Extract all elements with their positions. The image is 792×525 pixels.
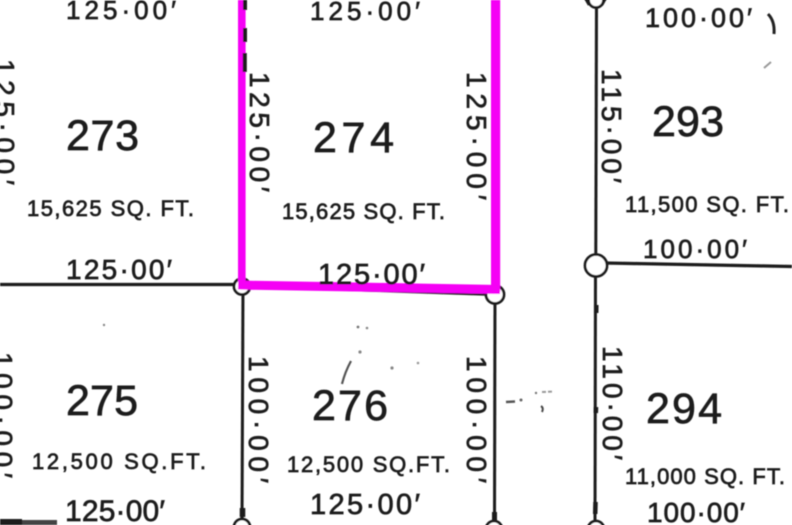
svg-text:275: 275 bbox=[66, 377, 138, 425]
svg-text:15,625 SQ. FT.: 15,625 SQ. FT. bbox=[27, 196, 194, 221]
svg-text:12,500 SQ.FT.: 12,500 SQ.FT. bbox=[287, 452, 450, 477]
svg-text:11,000 SQ. FT.: 11,000 SQ. FT. bbox=[625, 464, 785, 489]
svg-text:11,500 SQ. FT.: 11,500 SQ. FT. bbox=[625, 192, 789, 217]
svg-text:125·00′: 125·00′ bbox=[318, 259, 425, 291]
svg-text:125·00′: 125·00′ bbox=[65, 495, 165, 525]
svg-text:276: 276 bbox=[312, 382, 388, 430]
svg-text:293: 293 bbox=[652, 98, 724, 146]
svg-text:294: 294 bbox=[646, 385, 722, 433]
svg-text:273: 273 bbox=[66, 112, 139, 160]
svg-text:100·00′: 100·00′ bbox=[647, 497, 745, 525]
svg-text:274: 274 bbox=[313, 114, 394, 162]
svg-text:12,500 SQ.FT.: 12,500 SQ.FT. bbox=[32, 449, 206, 474]
svg-text:15,625 SQ. FT.: 15,625 SQ. FT. bbox=[282, 199, 445, 224]
